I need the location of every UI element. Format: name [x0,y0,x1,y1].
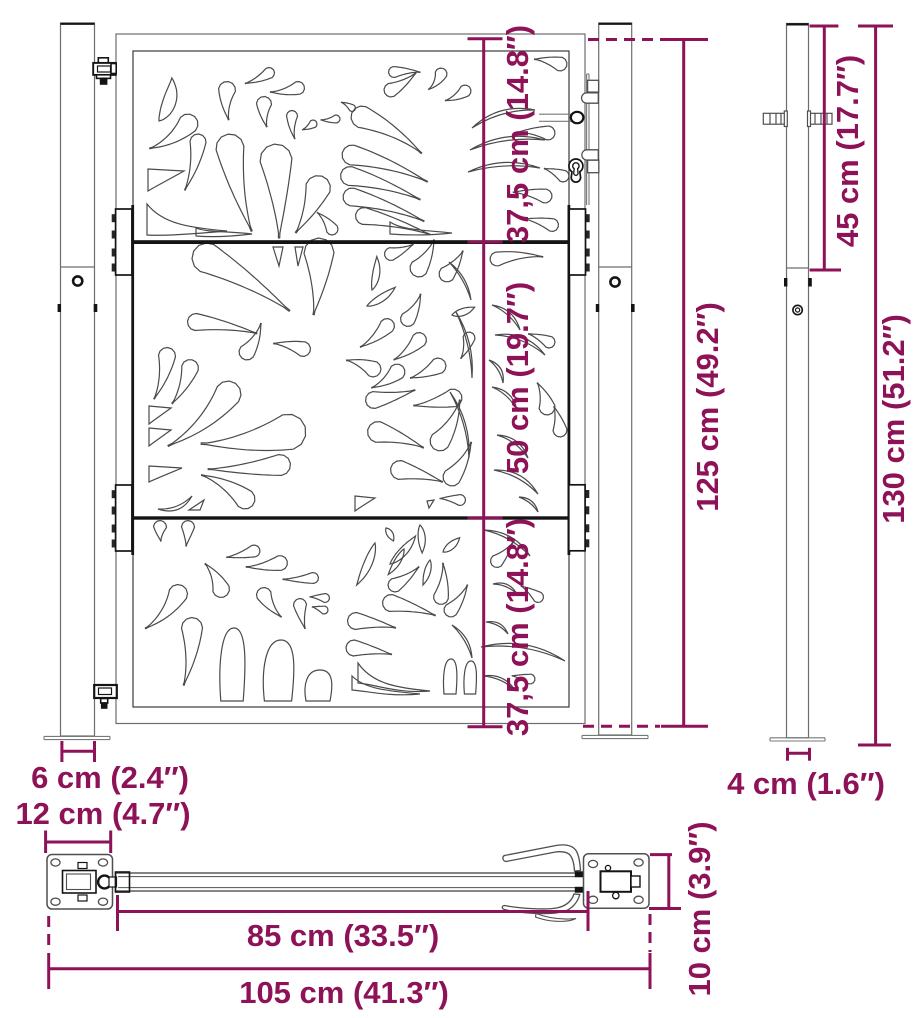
svg-text:12 cm (4.7″): 12 cm (4.7″) [15,796,190,831]
svg-text:85 cm (33.5″): 85 cm (33.5″) [247,918,439,953]
svg-text:45 cm (17.7″): 45 cm (17.7″) [830,55,865,247]
svg-text:6 cm (2.4″): 6 cm (2.4″) [31,760,189,795]
svg-text:50 cm (19.7″): 50 cm (19.7″) [500,282,535,474]
svg-text:130 cm (51.2″): 130 cm (51.2″) [876,314,911,524]
svg-text:10 cm (3.9″): 10 cm (3.9″) [682,821,717,996]
svg-text:4 cm (1.6″): 4 cm (1.6″) [727,766,885,801]
svg-text:105 cm (41.3″): 105 cm (41.3″) [239,975,449,1010]
svg-text:37,5 cm (14.8″): 37,5 cm (14.8″) [500,518,535,736]
svg-text:125 cm (49.2″): 125 cm (49.2″) [690,302,725,512]
svg-text:37,5 cm (14.8″): 37,5 cm (14.8″) [500,25,535,243]
